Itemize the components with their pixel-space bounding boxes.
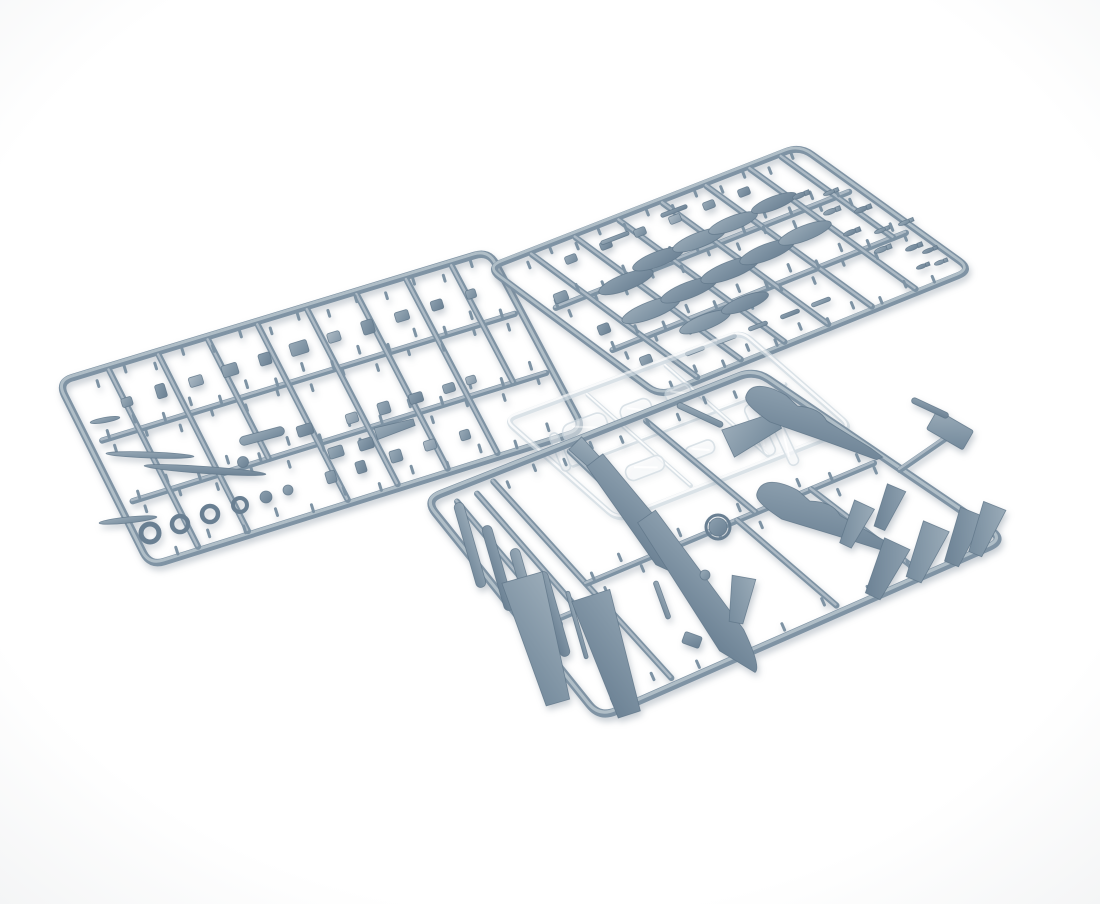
part-stub (704, 397, 706, 403)
part-stub (850, 199, 852, 205)
part-stub (932, 276, 934, 282)
part-stub (211, 409, 213, 415)
part-stub (311, 385, 313, 391)
part-stub (794, 222, 796, 228)
part-stub (598, 228, 600, 234)
part-stub (442, 344, 444, 350)
part-stub (342, 369, 344, 375)
part-stub (569, 310, 571, 316)
part-stub (529, 362, 531, 369)
part-stub (791, 153, 793, 159)
part-stub (240, 331, 242, 337)
part-stub (842, 260, 844, 266)
part-stub (851, 303, 853, 309)
part-disc (283, 485, 293, 495)
part-stub (411, 466, 413, 473)
part-stub (328, 310, 330, 316)
part-disc (700, 570, 710, 580)
part-stub (408, 349, 410, 355)
photo-model-kit-sprues (0, 0, 1100, 904)
part-stub (479, 445, 481, 452)
sprues-photo-canvas (0, 0, 1100, 904)
part-stub (414, 329, 416, 336)
part-stub (775, 340, 777, 346)
part-stub (528, 262, 530, 268)
part-stub (246, 381, 248, 388)
part-stub (550, 247, 552, 253)
part-stub (763, 227, 765, 233)
part-stub (547, 424, 549, 431)
part-stub (444, 327, 446, 334)
part-stub (244, 526, 246, 533)
part-stub (179, 489, 181, 495)
part-stub (880, 298, 882, 304)
part-stub (681, 266, 683, 272)
part-stub (670, 382, 672, 388)
part-stub (515, 441, 517, 448)
part-stub (737, 244, 739, 250)
part-stub (694, 366, 696, 372)
part-stub (226, 456, 228, 463)
part-stub (734, 392, 736, 398)
part-stub (779, 285, 781, 291)
part-stub (470, 312, 472, 319)
part-stub (358, 346, 360, 353)
part-stub (624, 224, 626, 230)
part-stub (182, 349, 184, 355)
part-stub (813, 278, 815, 284)
part-stub (138, 491, 140, 498)
part-stub (747, 345, 749, 351)
part-stub (466, 400, 468, 406)
part-stub (133, 415, 135, 422)
part-stub (447, 462, 449, 469)
part-stub (819, 205, 821, 211)
part-stub (107, 431, 109, 438)
part-stub (302, 364, 304, 371)
part-stub (388, 344, 390, 351)
part-stub (707, 249, 709, 255)
part-stub (355, 296, 357, 302)
part-stub (380, 416, 382, 423)
part-stub (443, 275, 445, 281)
part-stub (311, 505, 313, 512)
part-stub (647, 420, 649, 426)
part-stub (343, 488, 345, 495)
part-stub (503, 395, 505, 401)
part-stub (213, 346, 215, 352)
part-stub (115, 445, 117, 451)
part-stub (626, 353, 628, 359)
part-stub (276, 379, 278, 386)
part-stub (655, 335, 657, 341)
part-stub (386, 293, 388, 299)
part-stub (287, 438, 289, 445)
part-stub (694, 190, 696, 196)
part-stub (97, 381, 99, 387)
part-disc (260, 491, 272, 503)
part-stub (297, 313, 299, 319)
part-stub (799, 324, 801, 330)
part-stub (166, 475, 168, 482)
part-stub (288, 461, 290, 467)
part-stub (533, 465, 535, 471)
part-stub (155, 363, 157, 369)
part-stub (473, 329, 475, 335)
part-stub (124, 366, 126, 372)
part-stub (277, 389, 279, 395)
part-stub (743, 172, 745, 178)
part-stub (595, 294, 597, 300)
part-stub (270, 328, 272, 334)
part-stub (217, 484, 219, 490)
part-disc (238, 457, 249, 468)
part-stub (564, 459, 566, 465)
part-stub (189, 398, 191, 405)
part-stub (721, 187, 723, 193)
part-stub (501, 379, 503, 386)
part-stub (621, 437, 623, 443)
part-stub (259, 454, 261, 461)
part-stub (377, 365, 379, 371)
part-disc (709, 518, 727, 536)
part-stub (723, 361, 725, 367)
part-stub (904, 281, 906, 287)
part-stub (827, 319, 829, 325)
part-stub (208, 530, 210, 537)
part-stub (432, 417, 434, 423)
part-stub (646, 209, 648, 215)
part-stub (508, 324, 510, 330)
part-stub (537, 378, 539, 384)
part-stub (146, 429, 148, 435)
part-stub (246, 405, 248, 411)
part-stub (176, 547, 178, 554)
part-stub (163, 413, 165, 420)
part-stub (441, 397, 443, 404)
part-stub (219, 396, 221, 403)
part-stub (379, 484, 381, 491)
part-stub (470, 261, 472, 267)
part-stub (413, 278, 415, 284)
part-stub (275, 509, 277, 516)
part-stub (576, 243, 578, 249)
part-stub (180, 425, 182, 431)
part-stub (500, 310, 502, 317)
part-stub (319, 435, 321, 442)
part-stub (904, 235, 906, 241)
part-stub (507, 482, 509, 488)
part-stub (145, 506, 147, 512)
part-stub (322, 445, 324, 451)
part-stub (677, 414, 679, 420)
part-stub (332, 362, 334, 369)
part-stub (769, 168, 771, 174)
